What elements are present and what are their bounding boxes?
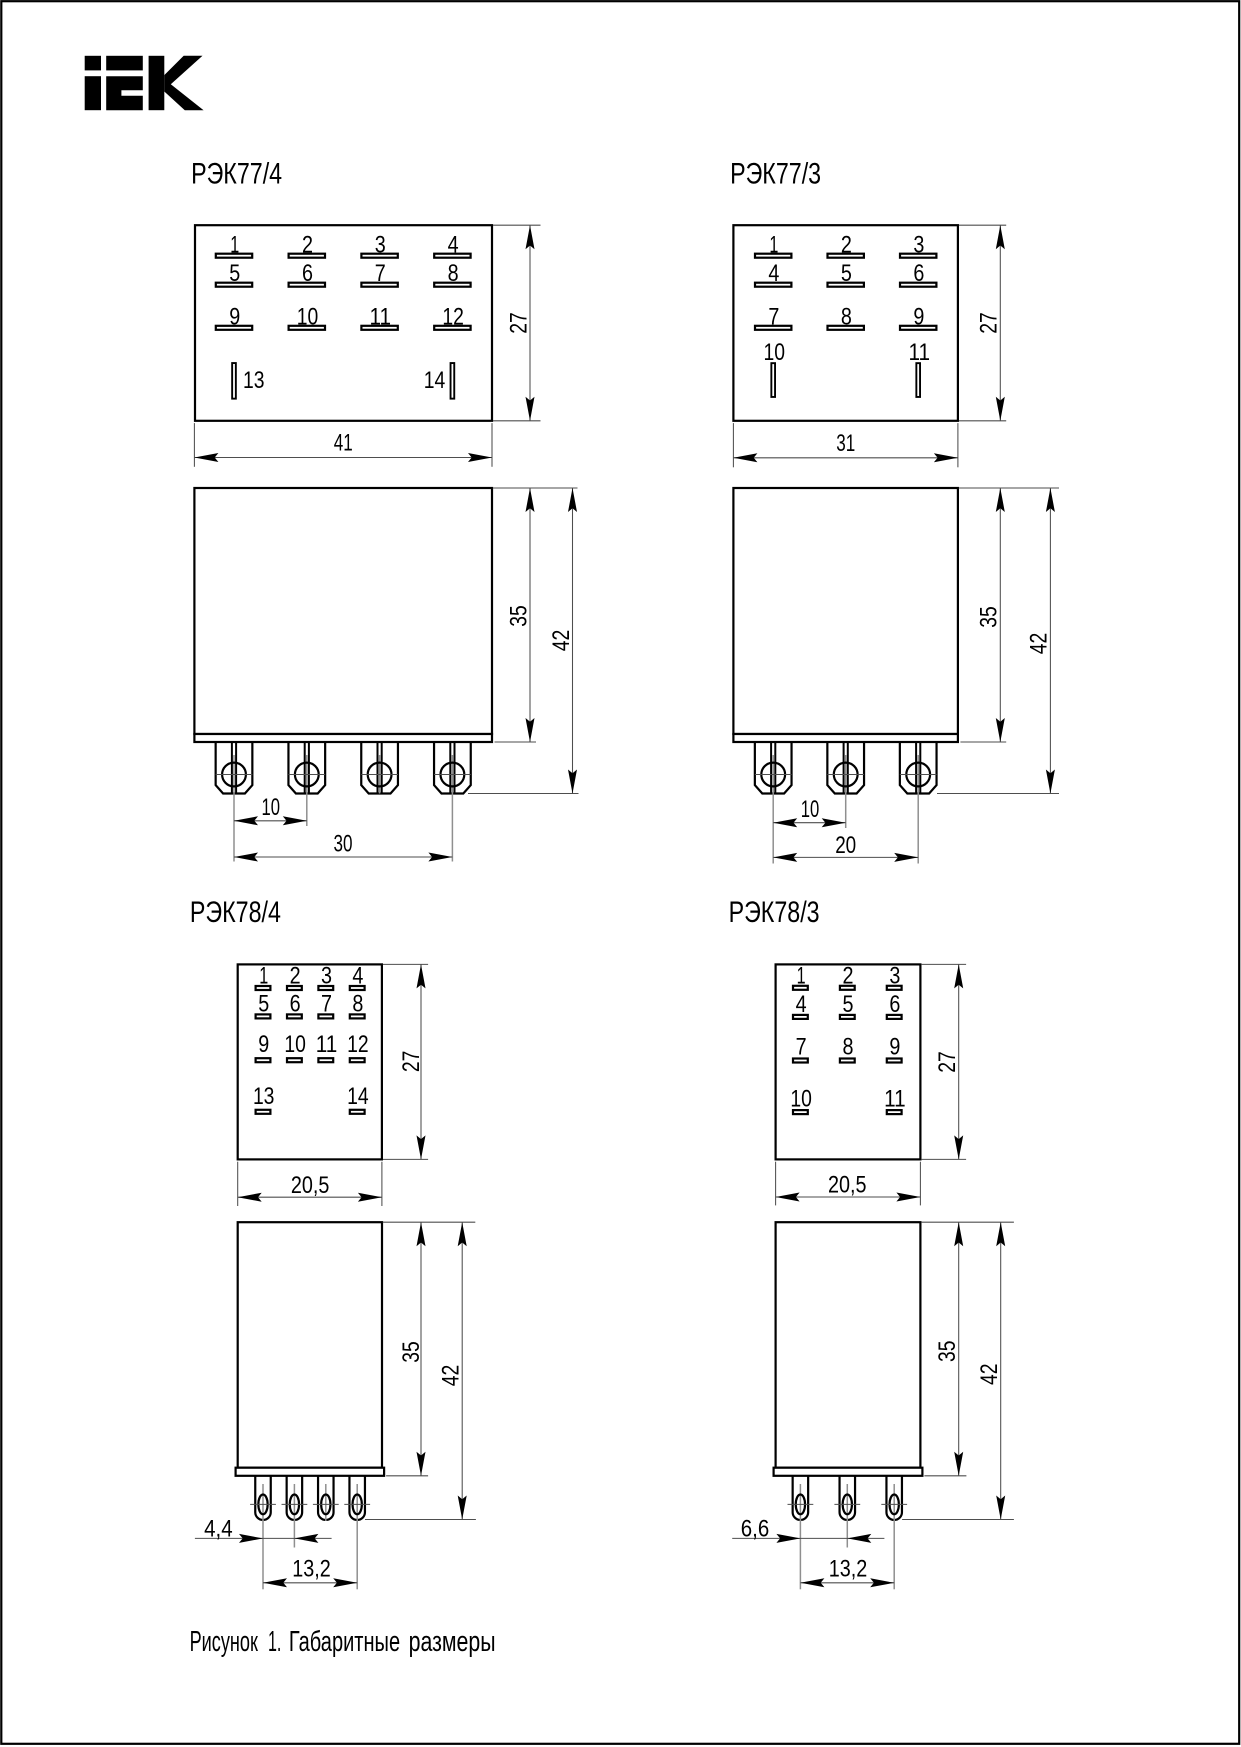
svg-text:27: 27 [505,312,532,334]
svg-text:11: 11 [884,1086,906,1113]
svg-text:РЭК77/4: РЭК77/4 [191,158,282,191]
svg-text:6,6: 6,6 [741,1516,770,1543]
svg-text:11: 11 [909,339,931,366]
svg-text:13: 13 [253,1083,275,1110]
svg-text:27: 27 [976,312,1003,334]
svg-text:8: 8 [843,1034,854,1061]
svg-text:10: 10 [284,1031,306,1058]
svg-text:12: 12 [347,1031,369,1058]
svg-text:11: 11 [316,1031,338,1058]
svg-text:42: 42 [438,1365,465,1387]
svg-text:14: 14 [424,367,446,394]
svg-text:РЭК77/3: РЭК77/3 [730,158,821,191]
svg-text:41: 41 [334,430,353,457]
svg-text:10: 10 [262,794,281,821]
svg-text:размеры: размеры [409,1626,496,1658]
svg-text:4,4: 4,4 [204,1516,233,1543]
svg-text:13: 13 [243,367,265,394]
svg-text:1.: 1. [268,1626,281,1658]
svg-text:27: 27 [934,1051,961,1073]
svg-text:35: 35 [934,1341,961,1363]
svg-text:7: 7 [796,1034,807,1061]
svg-text:10: 10 [801,796,820,823]
svg-text:13,2: 13,2 [829,1556,868,1583]
svg-text:31: 31 [836,430,855,457]
svg-text:Рисунок: Рисунок [190,1626,259,1658]
svg-text:20,5: 20,5 [828,1171,867,1198]
svg-text:10: 10 [790,1086,812,1113]
svg-text:20,5: 20,5 [291,1172,330,1199]
svg-text:20: 20 [835,832,856,859]
svg-text:42: 42 [548,630,575,652]
svg-text:14: 14 [347,1083,369,1110]
svg-text:Габаритные: Габаритные [289,1626,400,1658]
svg-text:42: 42 [1026,633,1053,655]
svg-text:10: 10 [764,339,786,366]
svg-text:35: 35 [505,605,532,627]
svg-text:9: 9 [258,1031,269,1058]
svg-text:РЭК78/4: РЭК78/4 [190,896,281,929]
svg-text:42: 42 [976,1363,1003,1385]
svg-text:27: 27 [398,1051,425,1073]
svg-text:РЭК78/3: РЭК78/3 [729,896,820,929]
svg-text:35: 35 [398,1341,425,1363]
svg-text:13,2: 13,2 [292,1556,331,1583]
svg-text:9: 9 [889,1034,900,1061]
svg-text:30: 30 [334,830,353,857]
svg-text:35: 35 [976,606,1003,628]
